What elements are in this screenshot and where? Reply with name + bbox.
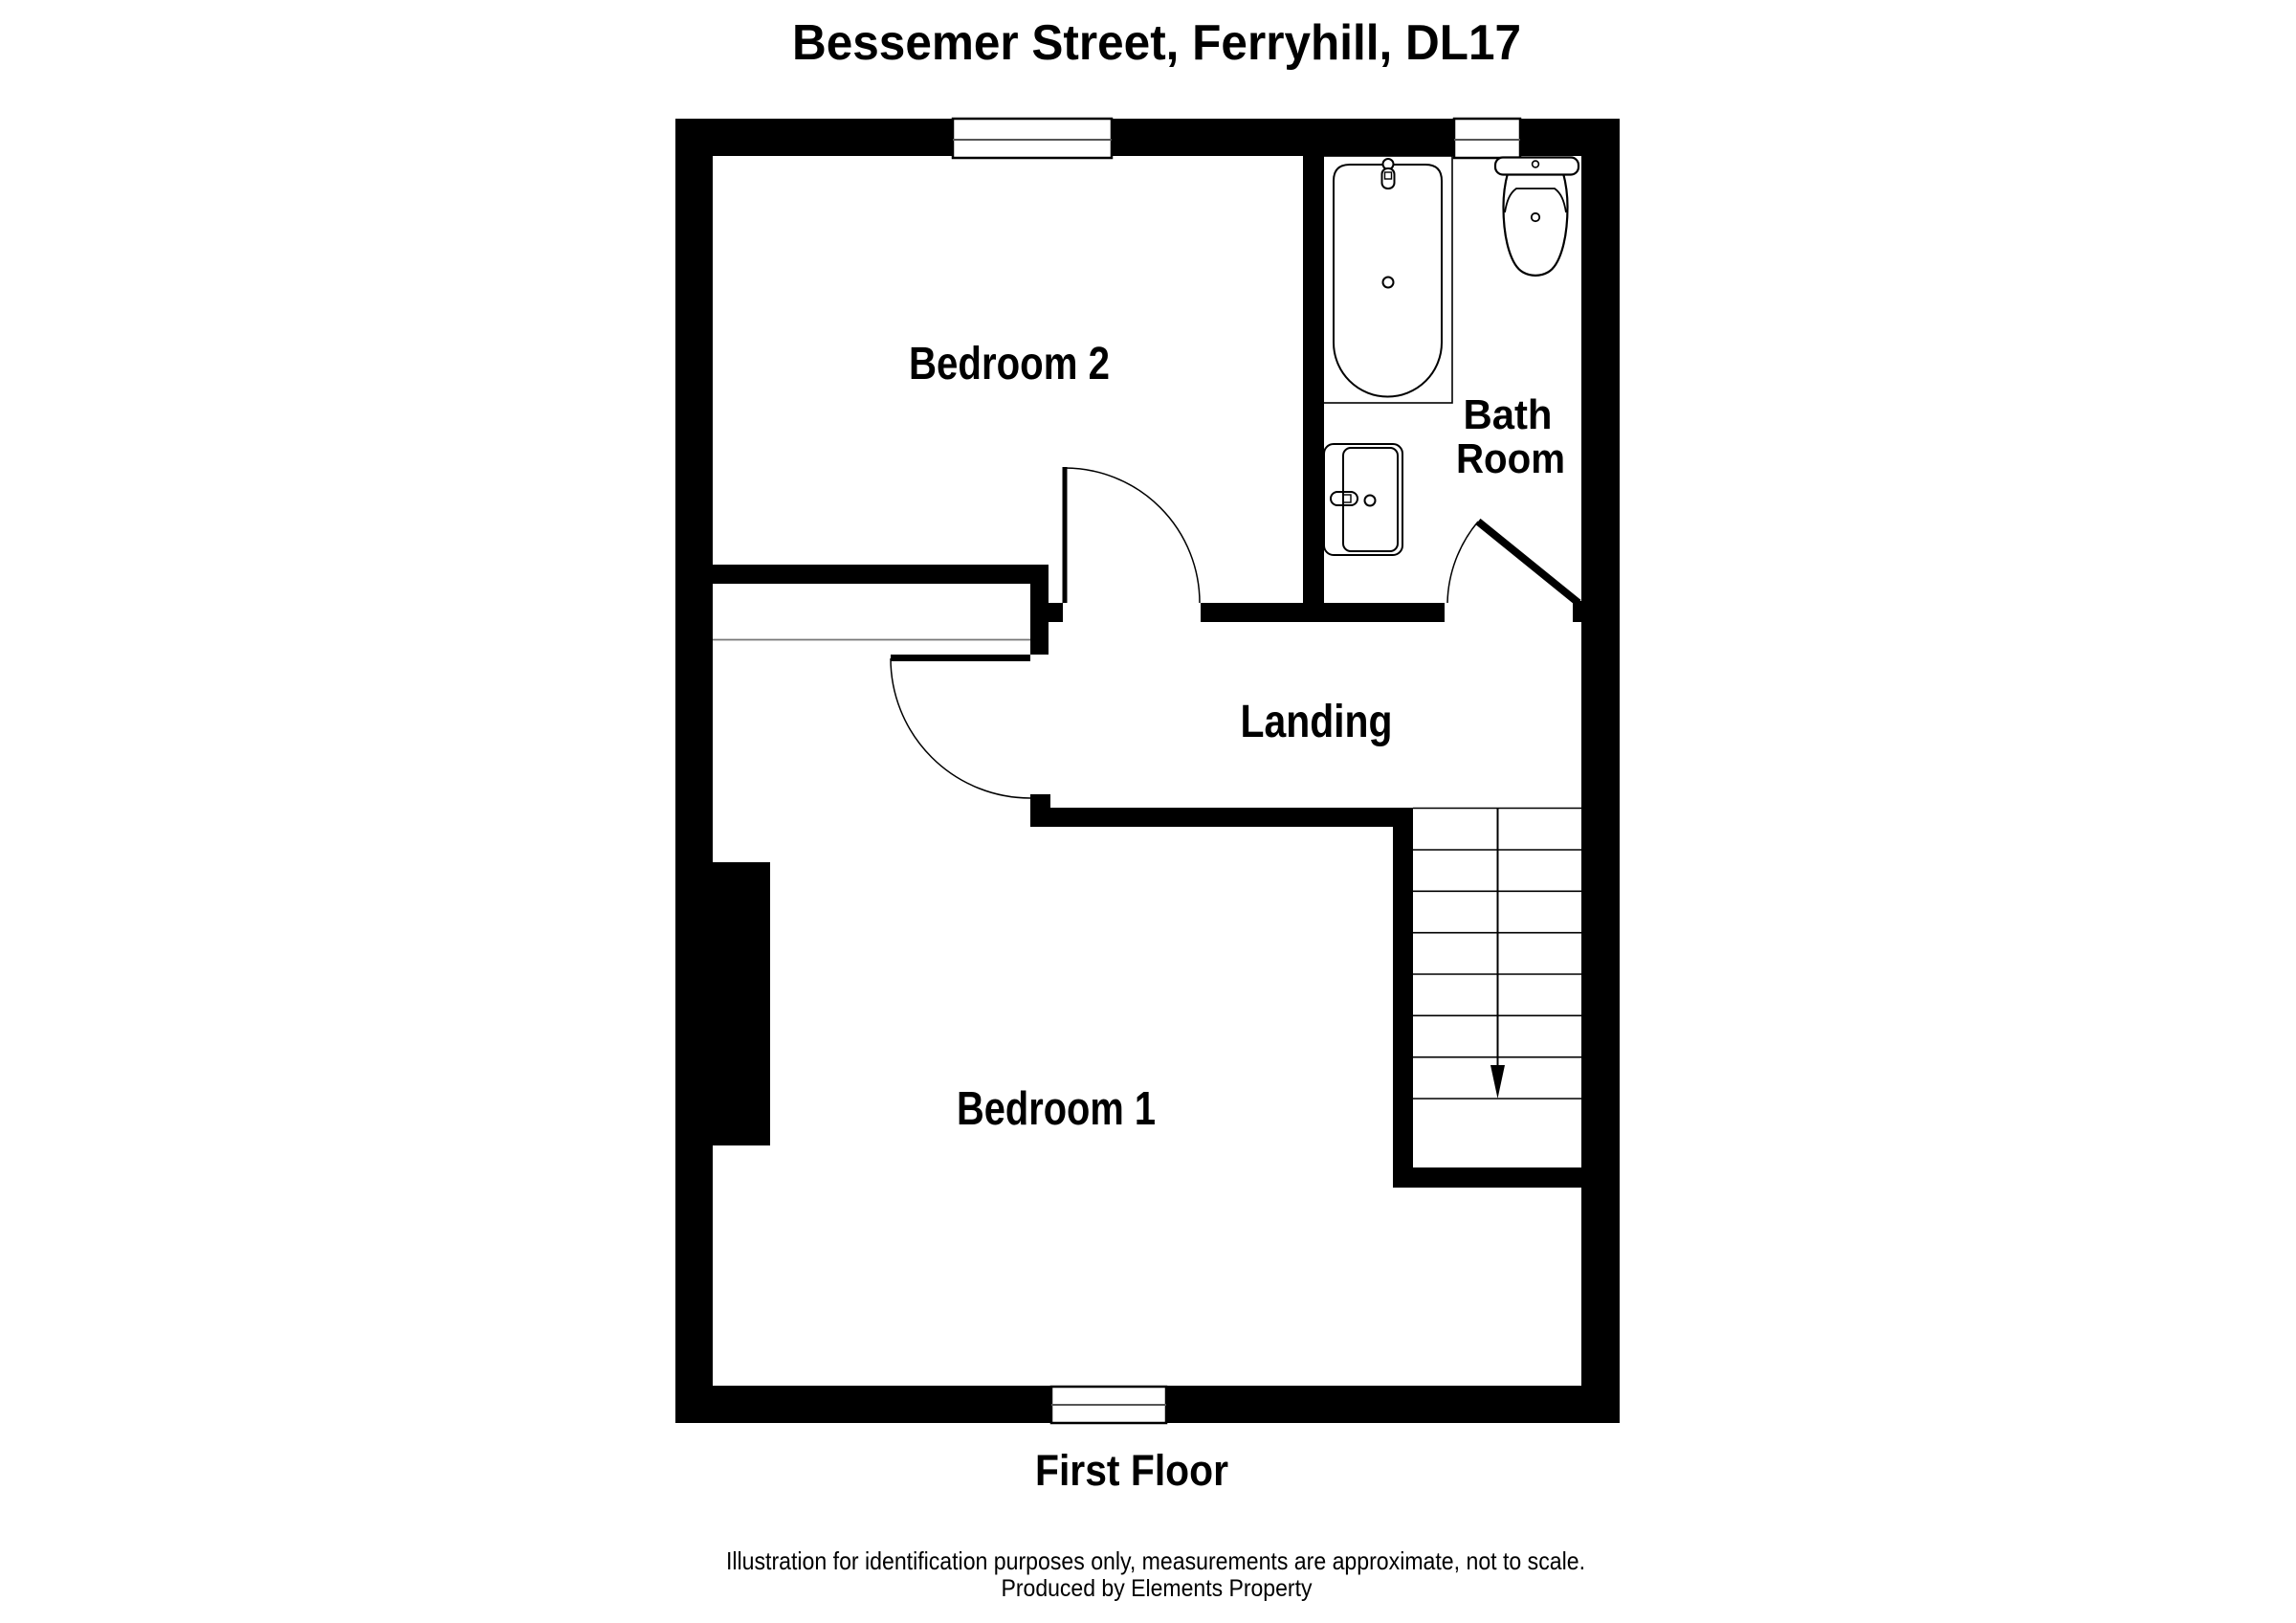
- svg-text:Bedroom 2: Bedroom 2: [909, 339, 1110, 389]
- svg-text:Bath: Bath: [1464, 391, 1553, 438]
- svg-text:Landing: Landing: [1241, 697, 1393, 747]
- svg-text:First Floor: First Floor: [1035, 1446, 1228, 1495]
- svg-text:Produced by Elements Property: Produced by Elements Property: [1002, 1575, 1313, 1602]
- svg-text:Bessemer Street, Ferryhill, DL: Bessemer Street, Ferryhill, DL17: [792, 15, 1521, 71]
- svg-text:Bedroom 1: Bedroom 1: [957, 1083, 1156, 1135]
- svg-text:Illustration for identificatio: Illustration for identification purposes…: [726, 1546, 1585, 1575]
- svg-text:Room: Room: [1456, 435, 1565, 482]
